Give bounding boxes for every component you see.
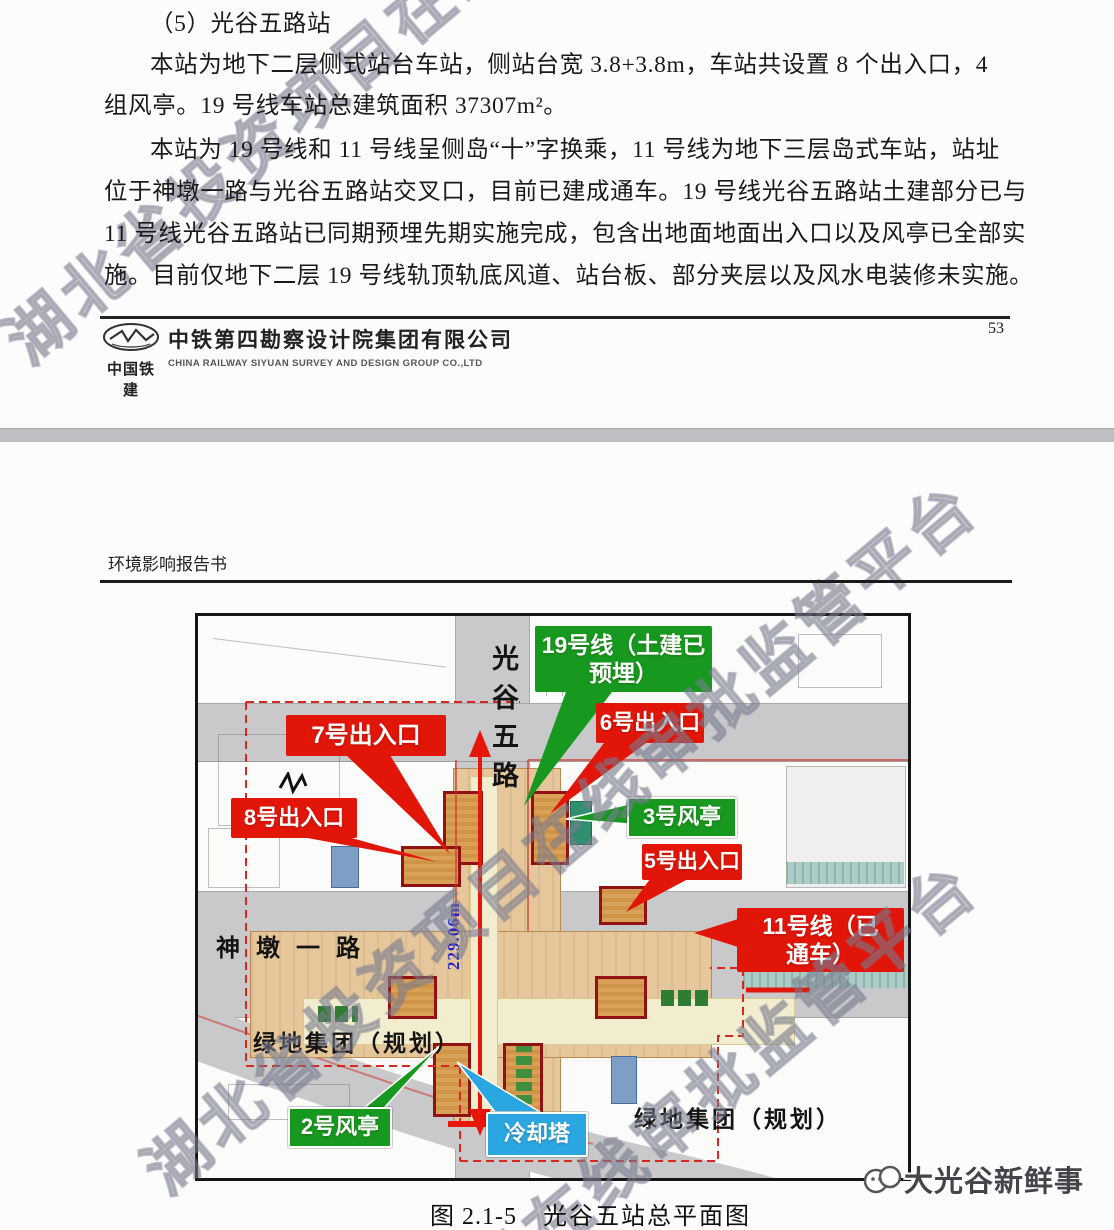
company-name-en: CHINA RAILWAY SIYUAN SURVEY AND DESIGN G… (168, 358, 513, 369)
header-rule (100, 580, 1012, 583)
logo-caption: 中国铁建 (100, 358, 162, 400)
body-line: 组风亭。19 号线车站总建筑面积 37307m²。 (104, 86, 567, 120)
company-name-cn: 中铁第四勘察设计院集团有限公司 (168, 324, 513, 354)
label-vent2: 2号风亭 (288, 1107, 392, 1148)
running-header: 环境影响报告书 (108, 550, 227, 575)
report-text-page: 湖北省投资项目在线审批监管平台 （5）光谷五路站 本站为地下二层侧式站台车站，侧… (0, 0, 1114, 428)
footer-rule (100, 316, 1010, 319)
area-label-left: 绿地集团（规划） (253, 1024, 461, 1058)
brand-mascot-icon (862, 1161, 904, 1197)
dimension-text: 229.06m (444, 876, 464, 996)
crcc-logo-icon (102, 322, 160, 352)
station-plan-figure: 光谷五路 神墩一路 绿地集团（规划） 绿地集团（规划） 229.06m 19号线… (195, 613, 911, 1181)
page-number: 53 (988, 320, 1004, 338)
road-name-horizontal: 神墩一路 (216, 928, 376, 963)
label-exit5: 5号出入口 (642, 844, 742, 880)
label-exit6: 6号出入口 (596, 703, 704, 743)
label-cooling-tower: 冷却塔 (486, 1112, 588, 1157)
figure-title: 光谷五站总平面图 (543, 1204, 751, 1230)
body-line: 施。目前仅地下二层 19 号线轨顶轨底风道、站台板、部分夹层以及风水电装修未实施… (104, 256, 1033, 290)
body-line: 本站为 19 号线和 11 号线呈侧岛“十”字换乘，11 号线为地下三层岛式车站… (150, 130, 1000, 164)
section-heading: （5）光谷五路站 (150, 4, 331, 38)
body-line: 11 号线光谷五路站已同期预埋先期实施完成，包含出地面地面出入口以及风亭已全部实 (104, 214, 1026, 248)
map-annotation-layer (198, 616, 908, 1178)
company-name-block: 中铁第四勘察设计院集团有限公司 CHINA RAILWAY SIYUAN SUR… (168, 324, 513, 369)
label-line19: 19号线（土建已 预埋） (535, 626, 712, 692)
report-figure-page: 湖北省投资项目在线审批监管平台 湖北省投资项目在线审批监管平台 环境影响报告书 (0, 442, 1114, 1230)
company-logo: 中国铁建 (100, 322, 162, 400)
road-name-vertical: 光谷五路 (484, 644, 523, 800)
label-line11: 11号线（已 通车） (737, 908, 904, 972)
body-line: 本站为地下二层侧式站台车站，侧站台宽 3.8+3.8m，车站共设置 8 个出入口… (150, 45, 988, 79)
scanned-report-view: 湖北省投资项目在线审批监管平台 （5）光谷五路站 本站为地下二层侧式站台车站，侧… (0, 0, 1114, 1230)
brand-text: 大光谷新鲜事 (904, 1158, 1084, 1200)
figure-number: 图 2.1-5 (430, 1204, 517, 1230)
label-exit7: 7号出入口 (286, 715, 446, 756)
brand-logo: 大光谷新鲜事 (862, 1158, 1084, 1200)
body-line: 位于神墩一路与光谷五路站交叉口，目前已建成通车。19 号线光谷五路站土建部分已与 (104, 172, 1027, 206)
label-vent3: 3号风亭 (627, 797, 737, 838)
area-label-right: 绿地集团（规划） (634, 1100, 842, 1134)
figure-caption: 图 2.1-5光谷五站总平面图 (430, 1196, 751, 1230)
label-exit8: 8号出入口 (231, 798, 357, 838)
